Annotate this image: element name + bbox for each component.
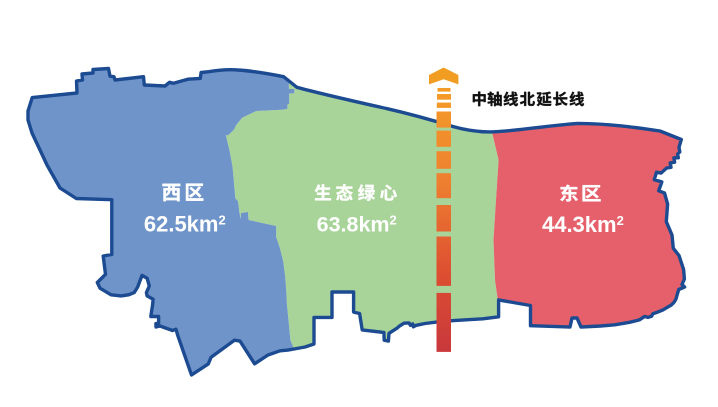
svg-text:44.3km2: 44.3km2 bbox=[542, 212, 624, 237]
svg-text:62.5km2: 62.5km2 bbox=[144, 212, 226, 237]
svg-text:63.8km2: 63.8km2 bbox=[317, 213, 397, 237]
